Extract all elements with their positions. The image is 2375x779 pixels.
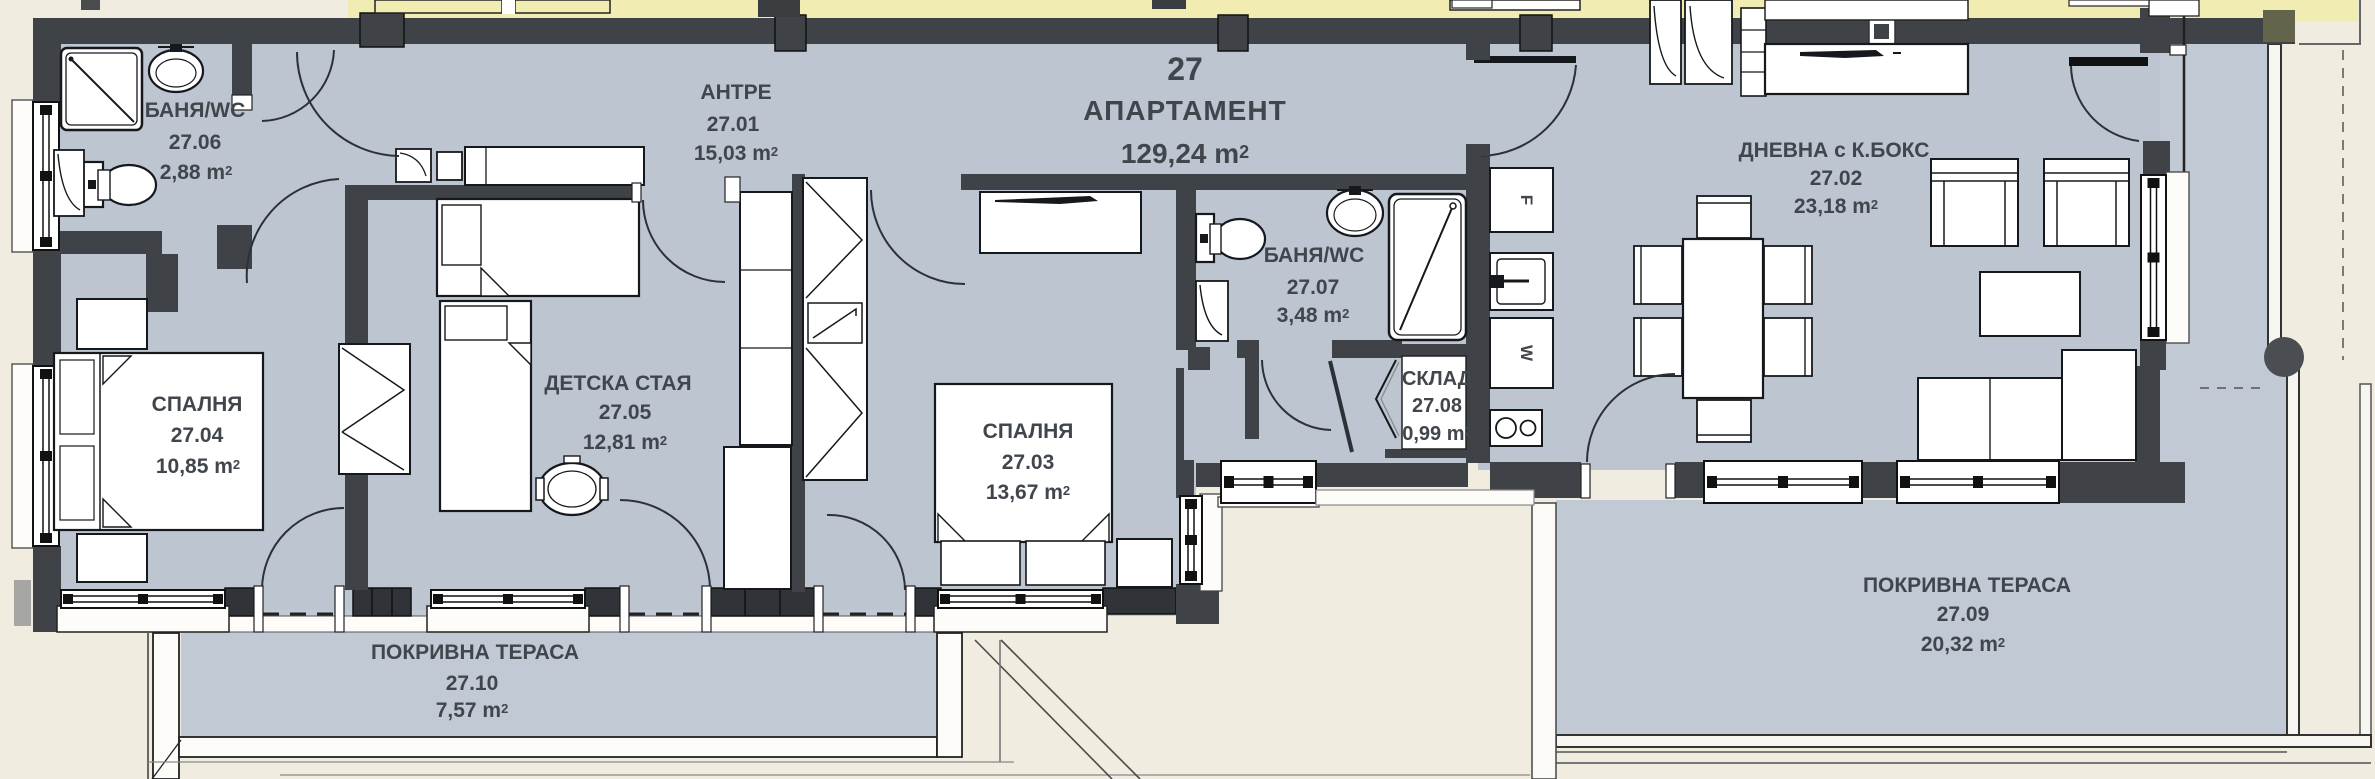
svg-text:ДЕТСКА СТАЯ: ДЕТСКА СТАЯ	[544, 372, 691, 395]
svg-text:ПОКРИВНА ТЕРАСА: ПОКРИВНА ТЕРАСА	[371, 641, 579, 664]
svg-text:АНТРЕ: АНТРЕ	[700, 81, 771, 104]
svg-text:27.10: 27.10	[446, 672, 499, 695]
svg-text:20,32 m2: 20,32 m2	[1921, 633, 2005, 656]
svg-text:F: F	[1517, 195, 1536, 205]
svg-text:ДНЕВНА с К.БОКС: ДНЕВНА с К.БОКС	[1739, 139, 1930, 162]
svg-text:27.04: 27.04	[171, 424, 224, 447]
svg-text:27.01: 27.01	[707, 113, 760, 136]
svg-text:15,03 m2: 15,03 m2	[694, 142, 778, 165]
svg-text:3,48 m2: 3,48 m2	[1277, 304, 1350, 327]
svg-text:АПАРТАМЕНТ: АПАРТАМЕНТ	[1083, 95, 1286, 126]
svg-text:27.07: 27.07	[1287, 276, 1340, 299]
svg-text:СКЛАД: СКЛАД	[1402, 368, 1472, 390]
svg-text:27.05: 27.05	[599, 401, 652, 424]
svg-text:12,81 m2: 12,81 m2	[583, 431, 667, 454]
svg-text:СПАЛНЯ: СПАЛНЯ	[983, 420, 1074, 443]
svg-text:БАНЯ/WC: БАНЯ/WC	[1264, 244, 1365, 267]
svg-text:7,57 m2: 7,57 m2	[436, 699, 509, 722]
svg-text:27: 27	[1167, 51, 1203, 87]
svg-text:27.03: 27.03	[1002, 451, 1055, 474]
svg-text:27.06: 27.06	[169, 131, 222, 154]
svg-text:27.02: 27.02	[1810, 167, 1863, 190]
svg-text:27.08: 27.08	[1412, 395, 1462, 417]
svg-text:129,24 m2: 129,24 m2	[1121, 138, 1249, 169]
svg-text:0,99 m2: 0,99 m2	[1402, 423, 1472, 445]
svg-text:СПАЛНЯ: СПАЛНЯ	[152, 393, 243, 416]
svg-text:БАНЯ/WC: БАНЯ/WC	[145, 99, 246, 122]
svg-text:W: W	[1517, 345, 1536, 362]
svg-text:27.09: 27.09	[1937, 603, 1990, 626]
svg-text:13,67 m2: 13,67 m2	[986, 481, 1070, 504]
svg-text:10,85 m2: 10,85 m2	[156, 455, 240, 478]
svg-text:ПОКРИВНА ТЕРАСА: ПОКРИВНА ТЕРАСА	[1863, 574, 2071, 597]
svg-text:23,18 m2: 23,18 m2	[1794, 195, 1878, 218]
svg-text:2,88 m2: 2,88 m2	[160, 161, 233, 184]
